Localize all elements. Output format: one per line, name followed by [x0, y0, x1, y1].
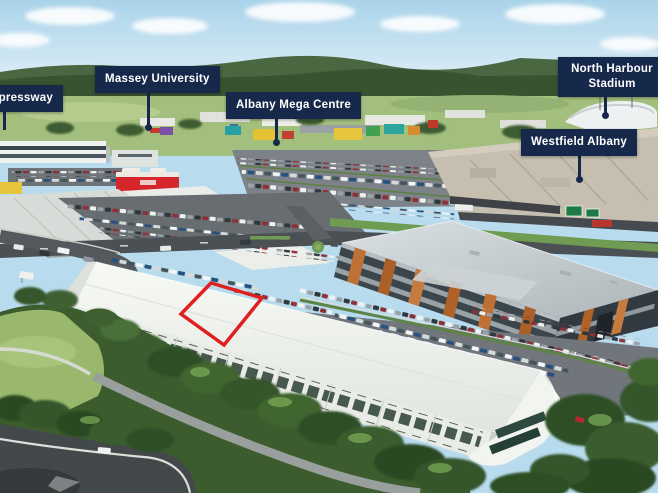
callout-westfield-albany-label: Westfield Albany — [531, 136, 627, 148]
callout-albany-mega-centre: Albany Mega Centre — [226, 92, 361, 119]
pointer-line-massey-university — [147, 90, 150, 126]
aerial-photo: Expressway Massey University Albany Mega… — [0, 0, 658, 493]
pointer-dot-massey-university — [145, 124, 152, 131]
callout-albany-mega-centre-label: Albany Mega Centre — [236, 99, 351, 111]
pointer-dot-albany-mega-centre — [273, 139, 280, 146]
pointer-dot-north-harbour-stadium — [602, 112, 609, 119]
bus-shelter — [19, 271, 34, 283]
callout-westfield-albany: Westfield Albany — [521, 129, 637, 156]
pointer-line-westfield-albany — [578, 154, 581, 178]
callout-north-harbour-stadium: North Harbour Stadium — [558, 57, 658, 97]
callout-expressway: Expressway — [0, 85, 63, 112]
callout-massey-university: Massey University — [95, 66, 220, 93]
callout-north-harbour-stadium-label: North Harbour Stadium — [571, 63, 653, 90]
callout-massey-university-label: Massey University — [105, 73, 210, 85]
pointer-dot-westfield-albany — [576, 176, 583, 183]
callout-expressway-label: Expressway — [0, 92, 53, 104]
